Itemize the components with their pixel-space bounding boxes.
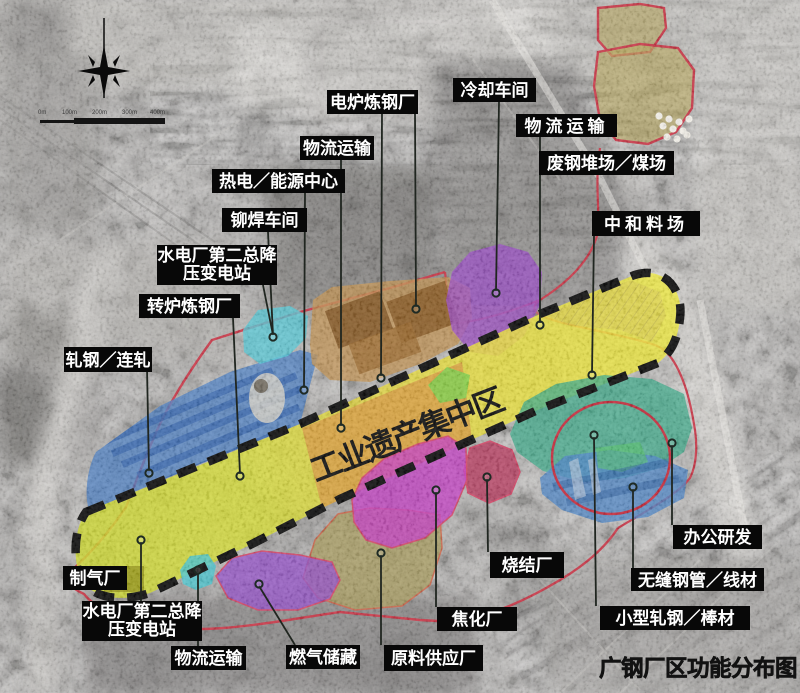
svg-text:小型轧钢／棒材: 小型轧钢／棒材: [616, 608, 735, 628]
svg-text:100m: 100m: [62, 110, 77, 116]
svg-text:0m: 0m: [38, 110, 46, 116]
svg-text:转炉炼钢厂: 转炉炼钢厂: [147, 296, 232, 316]
svg-text:电炉炼钢厂: 电炉炼钢厂: [330, 92, 415, 112]
svg-text:300m: 300m: [122, 110, 137, 116]
svg-text:物流运输: 物流运输: [175, 648, 244, 668]
svg-text:焦化厂: 焦化厂: [451, 609, 503, 629]
svg-text:水电厂第二总降: 水电厂第二总降: [158, 245, 278, 265]
svg-text:废钢堆场／煤场: 废钢堆场／煤场: [547, 153, 666, 173]
svg-text:制气厂: 制气厂: [70, 568, 121, 588]
svg-text:无缝钢管／线材: 无缝钢管／线材: [637, 570, 757, 590]
svg-text:烧结厂: 烧结厂: [502, 555, 553, 575]
svg-text:压变电站: 压变电站: [108, 619, 176, 639]
svg-text:原料供应厂: 原料供应厂: [391, 648, 476, 668]
svg-text:压变电站: 压变电站: [183, 263, 251, 283]
svg-text:冷却车间: 冷却车间: [461, 80, 529, 100]
svg-text:中和料场: 中和料场: [604, 214, 688, 234]
svg-text:物流运输: 物流运输: [525, 116, 609, 136]
svg-text:广钢厂区功能分布图: 广钢厂区功能分布图: [599, 655, 797, 681]
svg-text:热电／能源中心: 热电／能源中心: [219, 171, 338, 191]
svg-text:轧钢／连轧: 轧钢／连轧: [66, 350, 151, 370]
svg-text:燃气储藏: 燃气储藏: [289, 647, 357, 667]
svg-text:水电厂第二总降: 水电厂第二总降: [83, 601, 203, 621]
svg-text:200m: 200m: [92, 110, 107, 116]
svg-text:铆焊车间: 铆焊车间: [231, 210, 299, 230]
svg-text:400m: 400m: [150, 110, 165, 116]
svg-text:物流运输: 物流运输: [303, 138, 372, 158]
svg-text:办公研发: 办公研发: [684, 527, 753, 547]
